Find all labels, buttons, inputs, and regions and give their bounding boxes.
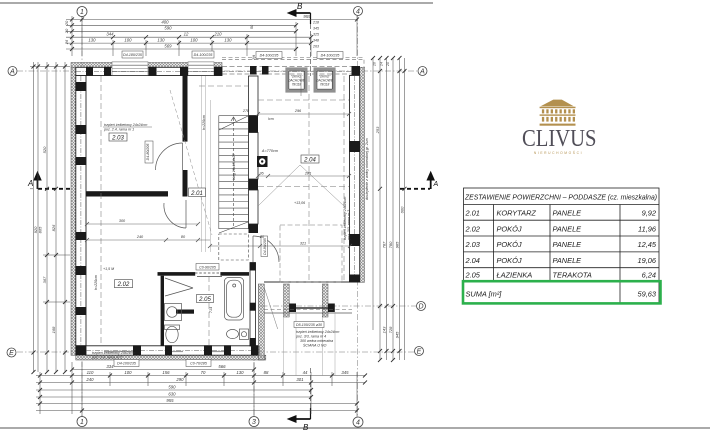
svg-text:h=220cm: h=220cm (94, 275, 98, 290)
svg-text:+1,5 M: +1,5 M (103, 267, 114, 271)
svg-text:590: 590 (168, 385, 176, 390)
svg-text:80: 80 (181, 235, 186, 239)
svg-text:NIERUCHOMOŚCI: NIERUCHOMOŚCI (534, 150, 583, 155)
svg-text:2.01: 2.01 (190, 191, 203, 197)
svg-text:2.02: 2.02 (465, 224, 480, 233)
svg-text:100: 100 (124, 370, 132, 375)
svg-text:poz. 3/3, rama nr 2: poz. 3/3, rama nr 2 (347, 210, 351, 241)
svg-text:TERAKOTA: TERAKOTA (553, 271, 592, 280)
svg-text:D4-180/235: D4-180/235 (123, 53, 142, 57)
svg-text:301: 301 (296, 377, 304, 382)
svg-text:h=220cm: h=220cm (202, 115, 206, 130)
svg-text:POKÓJ: POKÓJ (497, 256, 522, 265)
svg-text:334: 334 (106, 364, 114, 369)
svg-text:2.05: 2.05 (465, 271, 481, 280)
svg-text:100: 100 (190, 38, 198, 43)
svg-text:D4-80/205: D4-80/205 (146, 144, 150, 161)
svg-text:D4-100/235: D4-100/235 (321, 54, 340, 58)
svg-text:130: 130 (236, 370, 244, 375)
svg-text:826: 826 (51, 224, 56, 231)
svg-text:520: 520 (42, 146, 47, 153)
svg-text:B: B (303, 423, 309, 432)
svg-text:210: 210 (213, 32, 222, 37)
svg-text:88: 88 (264, 370, 269, 375)
svg-text:PANELE: PANELE (553, 240, 582, 249)
svg-text:290: 290 (175, 377, 184, 382)
svg-text:SUMA [m²]: SUMA [m²] (466, 290, 503, 299)
svg-text:344: 344 (106, 32, 114, 37)
svg-text:156: 156 (162, 370, 170, 375)
svg-text:218: 218 (312, 21, 319, 25)
svg-text:ZESTAWIENIE POWIERZCHNI – PODD: ZESTAWIENIE POWIERZCHNI – PODDASZE (cz. … (464, 193, 657, 202)
svg-text:78/118: 78/118 (320, 83, 330, 87)
svg-text:26: 26 (64, 39, 69, 45)
svg-text:728: 728 (388, 326, 393, 333)
svg-text:9,92: 9,92 (642, 209, 656, 218)
svg-text:bieg 16x18,4x27: bieg 16x18,4x27 (232, 153, 236, 180)
svg-text:1: 1 (80, 419, 84, 426)
svg-text:20: 20 (373, 62, 377, 67)
svg-text:D4-90/205: D4-90/205 (263, 238, 267, 255)
svg-text:4: 4 (356, 420, 360, 427)
svg-text:168: 168 (51, 326, 56, 333)
svg-text:240: 240 (136, 235, 144, 239)
svg-text:36: 36 (259, 172, 264, 176)
svg-text:D4-100/235: D4-100/235 (194, 53, 213, 57)
svg-text:poz. 3/3, rama nr 4: poz. 3/3, rama nr 4 (295, 335, 326, 339)
svg-text:A: A (419, 69, 425, 76)
svg-text:367: 367 (42, 276, 47, 283)
svg-text:300: 300 (119, 219, 126, 223)
svg-text:2.04: 2.04 (303, 158, 316, 164)
svg-text:PANELE: PANELE (553, 256, 582, 265)
svg-text:50: 50 (250, 24, 254, 29)
svg-text:C0-90/205: C0-90/205 (199, 265, 216, 269)
svg-text:POKÓJ: POKÓJ (497, 224, 522, 233)
svg-text:poz. 3.4, rama nr 2: poz. 3.4, rama nr 2 (91, 356, 122, 360)
svg-text:A=770cm: A=770cm (261, 149, 278, 153)
svg-text:780: 780 (388, 241, 393, 248)
svg-text:D: D (418, 304, 423, 311)
svg-text:130: 130 (224, 38, 232, 43)
svg-text:44: 44 (303, 370, 308, 375)
svg-text:955: 955 (303, 14, 311, 19)
svg-text:2.03: 2.03 (111, 136, 124, 142)
svg-text:100: 100 (124, 38, 132, 43)
svg-text:D4-100/235: D4-100/235 (117, 362, 136, 366)
svg-text:C0-70/285: C0-70/285 (190, 362, 207, 366)
svg-text:A: A (9, 69, 15, 76)
svg-text:325: 325 (313, 33, 319, 37)
svg-text:70: 70 (201, 370, 206, 375)
svg-text:569: 569 (164, 43, 172, 48)
svg-text:CLIVUS: CLIVUS (522, 126, 597, 152)
svg-text:590: 590 (164, 26, 172, 31)
svg-text:110: 110 (87, 370, 94, 375)
svg-text:20: 20 (64, 28, 69, 34)
svg-text:4: 4 (356, 9, 360, 16)
svg-text:ŁAZIENKA: ŁAZIENKA (497, 271, 533, 280)
svg-text:E: E (9, 350, 14, 357)
svg-text:566: 566 (218, 364, 226, 369)
svg-text:trzpień żelbetowy 24x24cm: trzpień żelbetowy 24x24cm (104, 123, 147, 127)
svg-text:600: 600 (400, 206, 405, 213)
svg-text:docieplenie z wełny mineralnej: docieplenie z wełny mineralnej gr. 2cm (365, 138, 369, 200)
svg-text:278: 278 (242, 109, 250, 113)
svg-text:2.02: 2.02 (117, 282, 130, 288)
svg-text:253: 253 (375, 126, 380, 134)
svg-text:PANELE: PANELE (553, 224, 582, 233)
svg-text:E: E (417, 349, 422, 356)
svg-text:A: A (27, 179, 33, 188)
svg-text:19,06: 19,06 (638, 256, 657, 265)
svg-text:20: 20 (386, 62, 390, 67)
svg-text:2.05: 2.05 (198, 297, 211, 303)
svg-text:Icm: Icm (268, 117, 274, 121)
svg-text:59,63: 59,63 (638, 290, 657, 299)
svg-text:2.01: 2.01 (465, 209, 480, 218)
svg-text:11,96: 11,96 (638, 224, 657, 233)
svg-text:12: 12 (184, 32, 189, 37)
svg-text:2.03: 2.03 (465, 240, 481, 249)
svg-text:240: 240 (85, 377, 94, 382)
svg-text:945: 945 (395, 331, 400, 338)
svg-text:PANELE: PANELE (553, 209, 582, 218)
svg-text:24: 24 (380, 62, 384, 67)
svg-text:321: 321 (300, 242, 306, 246)
svg-text:2.04: 2.04 (465, 256, 480, 265)
svg-text:trzpień żelbetowy 24x24cm: trzpień żelbetowy 24x24cm (296, 330, 339, 334)
svg-text:296: 296 (294, 109, 302, 113)
svg-text:12,45: 12,45 (638, 240, 657, 249)
svg-text:D4-100/235: D4-100/235 (260, 54, 279, 58)
svg-text:trzpień żelbetowy 24x24cm: trzpień żelbetowy 24x24cm (92, 351, 135, 355)
svg-text:ŚCIANA O NO: ŚCIANA O NO (303, 343, 327, 348)
svg-text:POKÓJ: POKÓJ (497, 240, 522, 249)
svg-text:2%: 2% (252, 54, 256, 61)
svg-text:865: 865 (38, 226, 43, 233)
svg-text:6,24: 6,24 (642, 271, 656, 280)
svg-text:285: 285 (304, 172, 312, 176)
svg-text:348: 348 (313, 39, 319, 43)
svg-text:B: B (297, 2, 303, 11)
svg-text:KORYTARZ: KORYTARZ (497, 209, 537, 218)
svg-text:130: 130 (88, 38, 96, 43)
svg-text:300 wełna mineralna: 300 wełna mineralna (300, 339, 333, 343)
svg-text:714: 714 (209, 307, 213, 313)
svg-text:D5-100/235 ⌀30: D5-100/235 ⌀30 (296, 323, 322, 327)
svg-text:955: 955 (166, 398, 174, 403)
svg-text:263: 263 (312, 45, 319, 49)
svg-text:630: 630 (168, 392, 176, 397)
svg-text:143: 143 (382, 326, 387, 333)
svg-text:345: 345 (341, 370, 349, 375)
svg-text:400: 400 (161, 20, 169, 25)
svg-text:poz. 2.4, rama nr 1: poz. 2.4, rama nr 1 (103, 128, 134, 132)
svg-text:78/118: 78/118 (292, 83, 302, 87)
svg-text:130: 130 (157, 38, 165, 43)
svg-text:3: 3 (252, 419, 256, 426)
svg-text:A: A (433, 181, 439, 188)
svg-text:787: 787 (382, 241, 387, 248)
svg-text:345: 345 (313, 27, 319, 31)
svg-text:20: 20 (64, 20, 69, 26)
svg-text:985: 985 (395, 241, 400, 248)
svg-text:1: 1 (80, 9, 84, 16)
svg-text:+13,06: +13,06 (294, 201, 305, 205)
